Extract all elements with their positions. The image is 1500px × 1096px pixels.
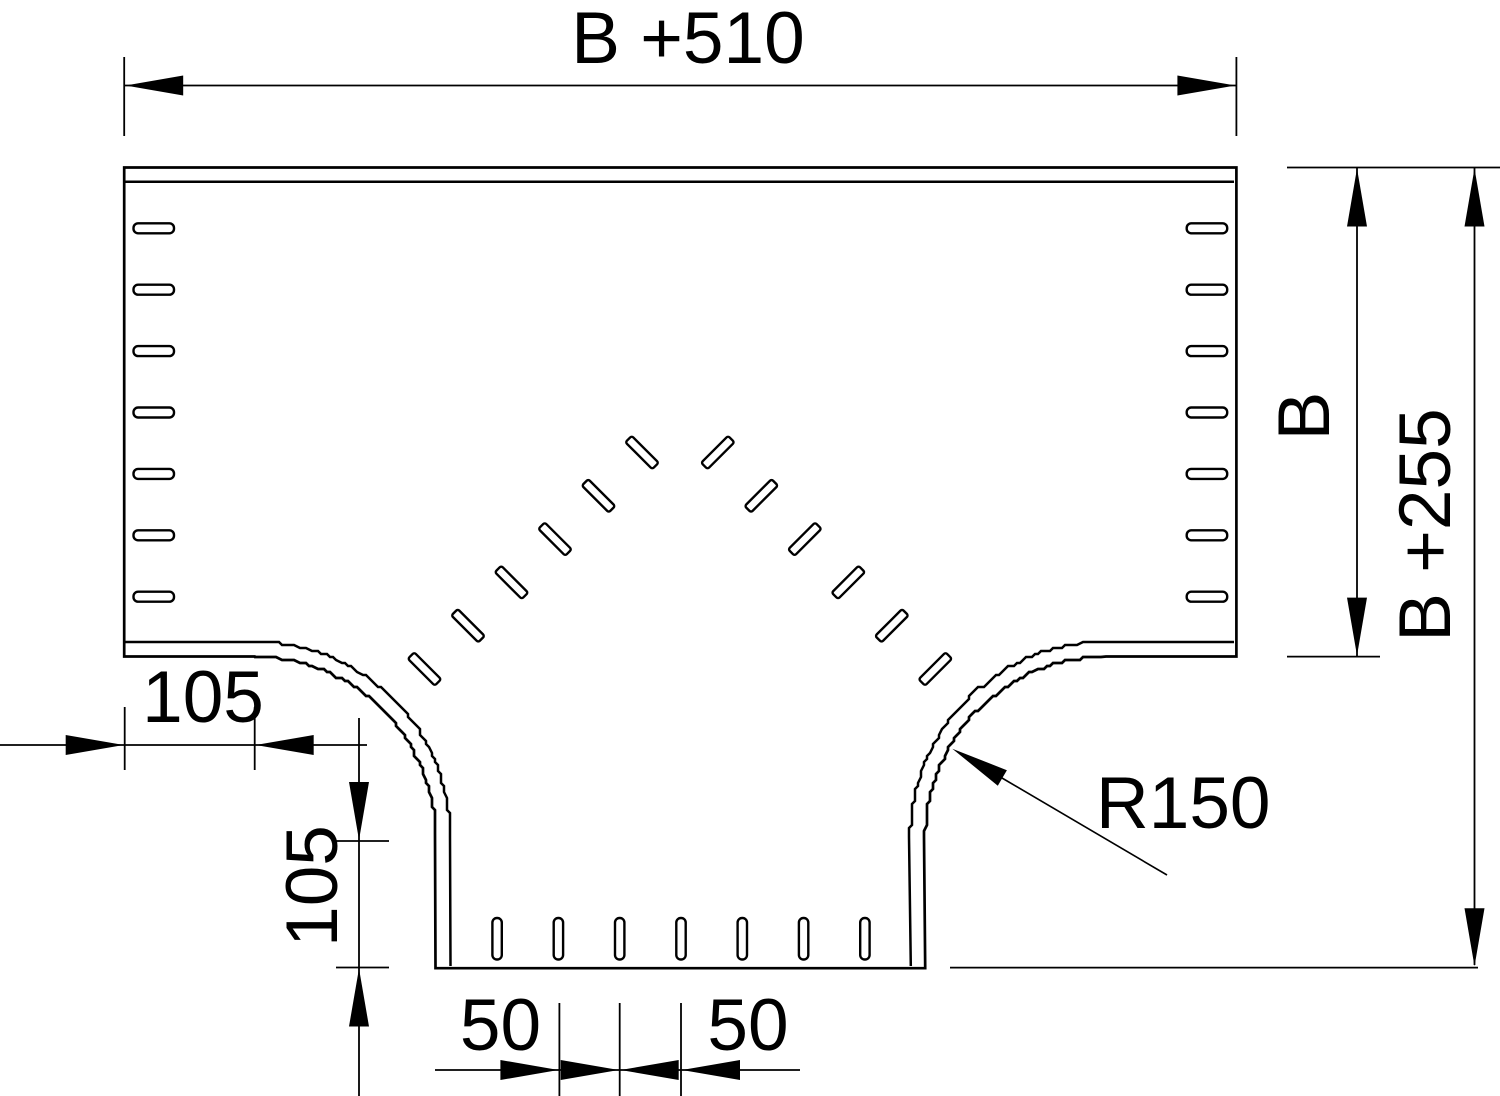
svg-text:B +255: B +255 bbox=[1385, 408, 1466, 641]
svg-text:B: B bbox=[1264, 392, 1345, 441]
svg-text:50: 50 bbox=[460, 985, 541, 1066]
svg-text:105: 105 bbox=[142, 657, 264, 738]
svg-text:B +510: B +510 bbox=[571, 0, 804, 79]
svg-text:R150: R150 bbox=[1096, 763, 1271, 844]
svg-text:105: 105 bbox=[272, 825, 353, 947]
svg-text:50: 50 bbox=[707, 985, 788, 1066]
